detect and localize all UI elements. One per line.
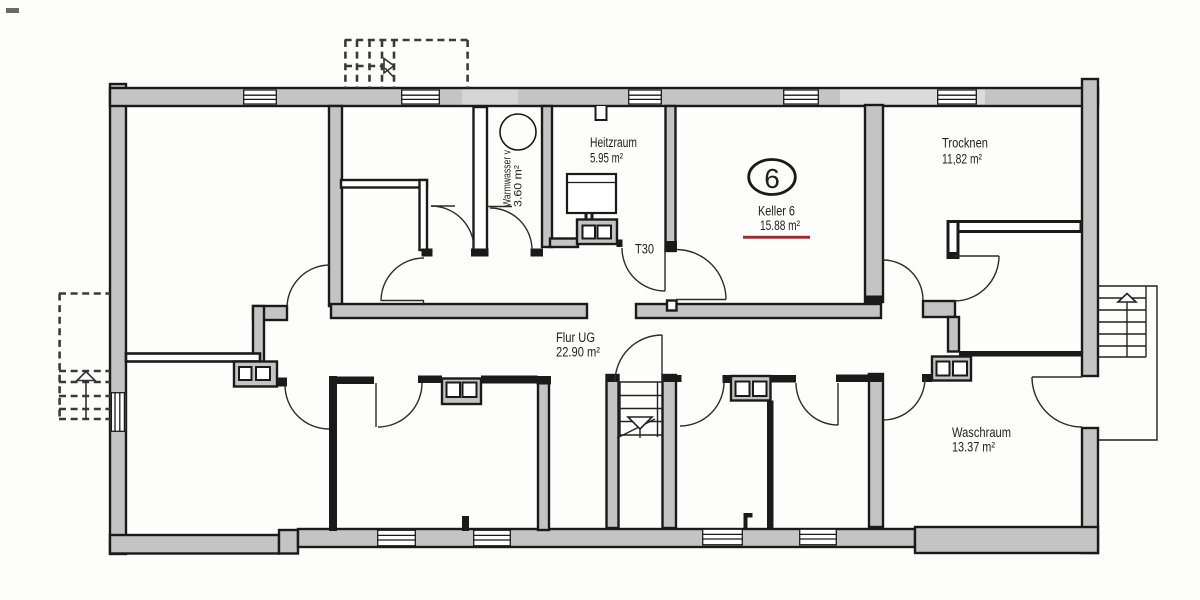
svg-text:Trocknen: Trocknen xyxy=(942,136,988,151)
svg-text:T30: T30 xyxy=(635,242,654,257)
svg-text:Heitzraum: Heitzraum xyxy=(590,135,637,150)
svg-text:3.60 m²: 3.60 m² xyxy=(513,165,525,207)
svg-text:Flur UG: Flur UG xyxy=(556,330,595,345)
svg-text:6: 6 xyxy=(764,163,780,194)
svg-text:5.95 m²: 5.95 m² xyxy=(590,151,623,166)
svg-text:13.37 m²: 13.37 m² xyxy=(952,440,995,455)
svg-text:Keller 6: Keller 6 xyxy=(758,204,795,219)
svg-text:Waschraum: Waschraum xyxy=(952,425,1011,440)
svg-text:22.90 m²: 22.90 m² xyxy=(556,345,600,360)
svg-text:15.88 m²: 15.88 m² xyxy=(760,218,800,233)
svg-text:11,82 m²: 11,82 m² xyxy=(942,152,982,167)
